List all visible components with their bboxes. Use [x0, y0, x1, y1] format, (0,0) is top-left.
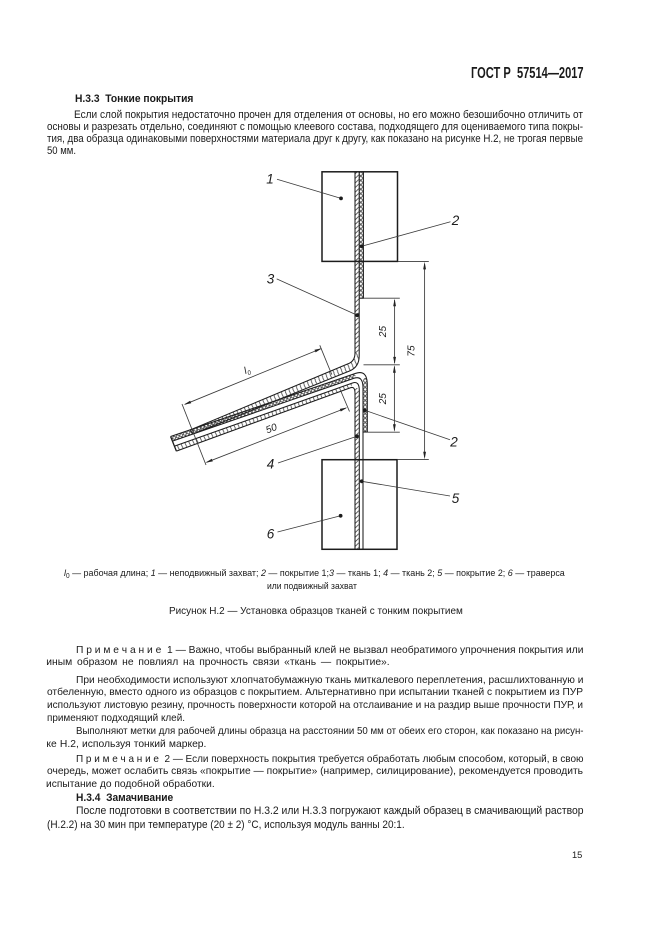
- svg-text:25: 25: [378, 393, 389, 406]
- svg-text:3: 3: [267, 272, 275, 287]
- svg-text:4: 4: [267, 457, 275, 472]
- svg-text:50: 50: [264, 422, 279, 436]
- svg-text:75: 75: [407, 345, 418, 357]
- svg-text:25: 25: [378, 326, 389, 339]
- svg-text:2: 2: [451, 213, 460, 228]
- svg-text:6: 6: [267, 527, 275, 542]
- svg-text:1: 1: [266, 172, 274, 187]
- svg-text:5: 5: [452, 491, 460, 506]
- svg-text:l0: l0: [242, 364, 252, 378]
- svg-text:2: 2: [449, 435, 458, 450]
